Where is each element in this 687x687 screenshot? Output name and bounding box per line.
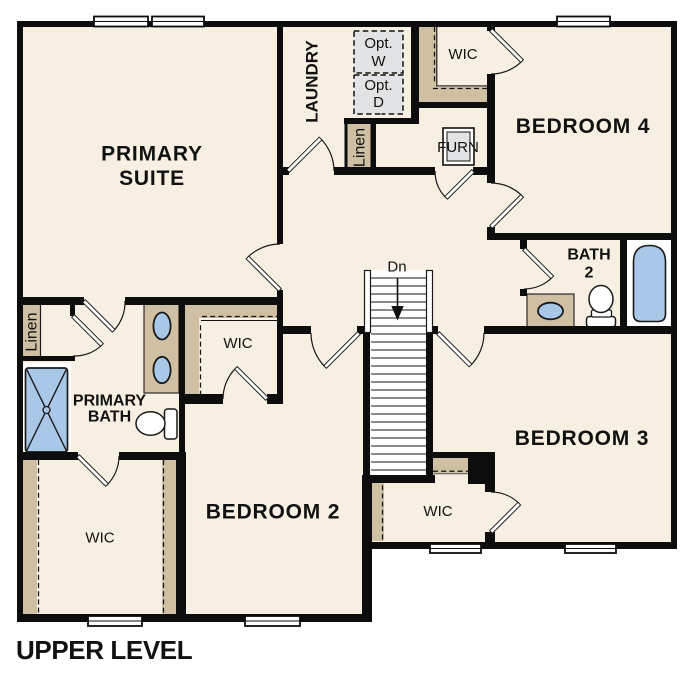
svg-text:PRIMARY: PRIMARY: [73, 393, 147, 410]
svg-text:2: 2: [585, 265, 594, 282]
svg-text:SUITE: SUITE: [119, 167, 185, 190]
svg-text:D: D: [373, 94, 384, 111]
svg-text:FURN: FURN: [437, 139, 479, 156]
svg-text:WIC: WIC: [448, 46, 477, 63]
svg-text:Linen: Linen: [23, 312, 40, 351]
svg-text:PRIMARY: PRIMARY: [101, 143, 203, 166]
svg-text:WIC: WIC: [223, 335, 252, 352]
svg-text:Opt.: Opt.: [364, 77, 392, 94]
svg-text:Opt.: Opt.: [364, 35, 392, 52]
svg-text:BEDROOM 4: BEDROOM 4: [516, 115, 650, 138]
svg-text:BATH: BATH: [567, 247, 610, 264]
svg-text:WIC: WIC: [423, 503, 452, 520]
svg-text:BEDROOM 2: BEDROOM 2: [206, 501, 340, 524]
svg-text:Linen: Linen: [352, 128, 369, 167]
svg-text:Dn: Dn: [387, 259, 406, 276]
svg-text:WIC: WIC: [85, 530, 114, 547]
svg-text:W: W: [371, 53, 386, 70]
svg-text:UPPER LEVEL: UPPER LEVEL: [16, 635, 193, 665]
svg-text:BATH: BATH: [88, 409, 131, 426]
svg-text:LAUNDRY: LAUNDRY: [303, 40, 322, 123]
svg-text:BEDROOM 3: BEDROOM 3: [515, 427, 649, 450]
